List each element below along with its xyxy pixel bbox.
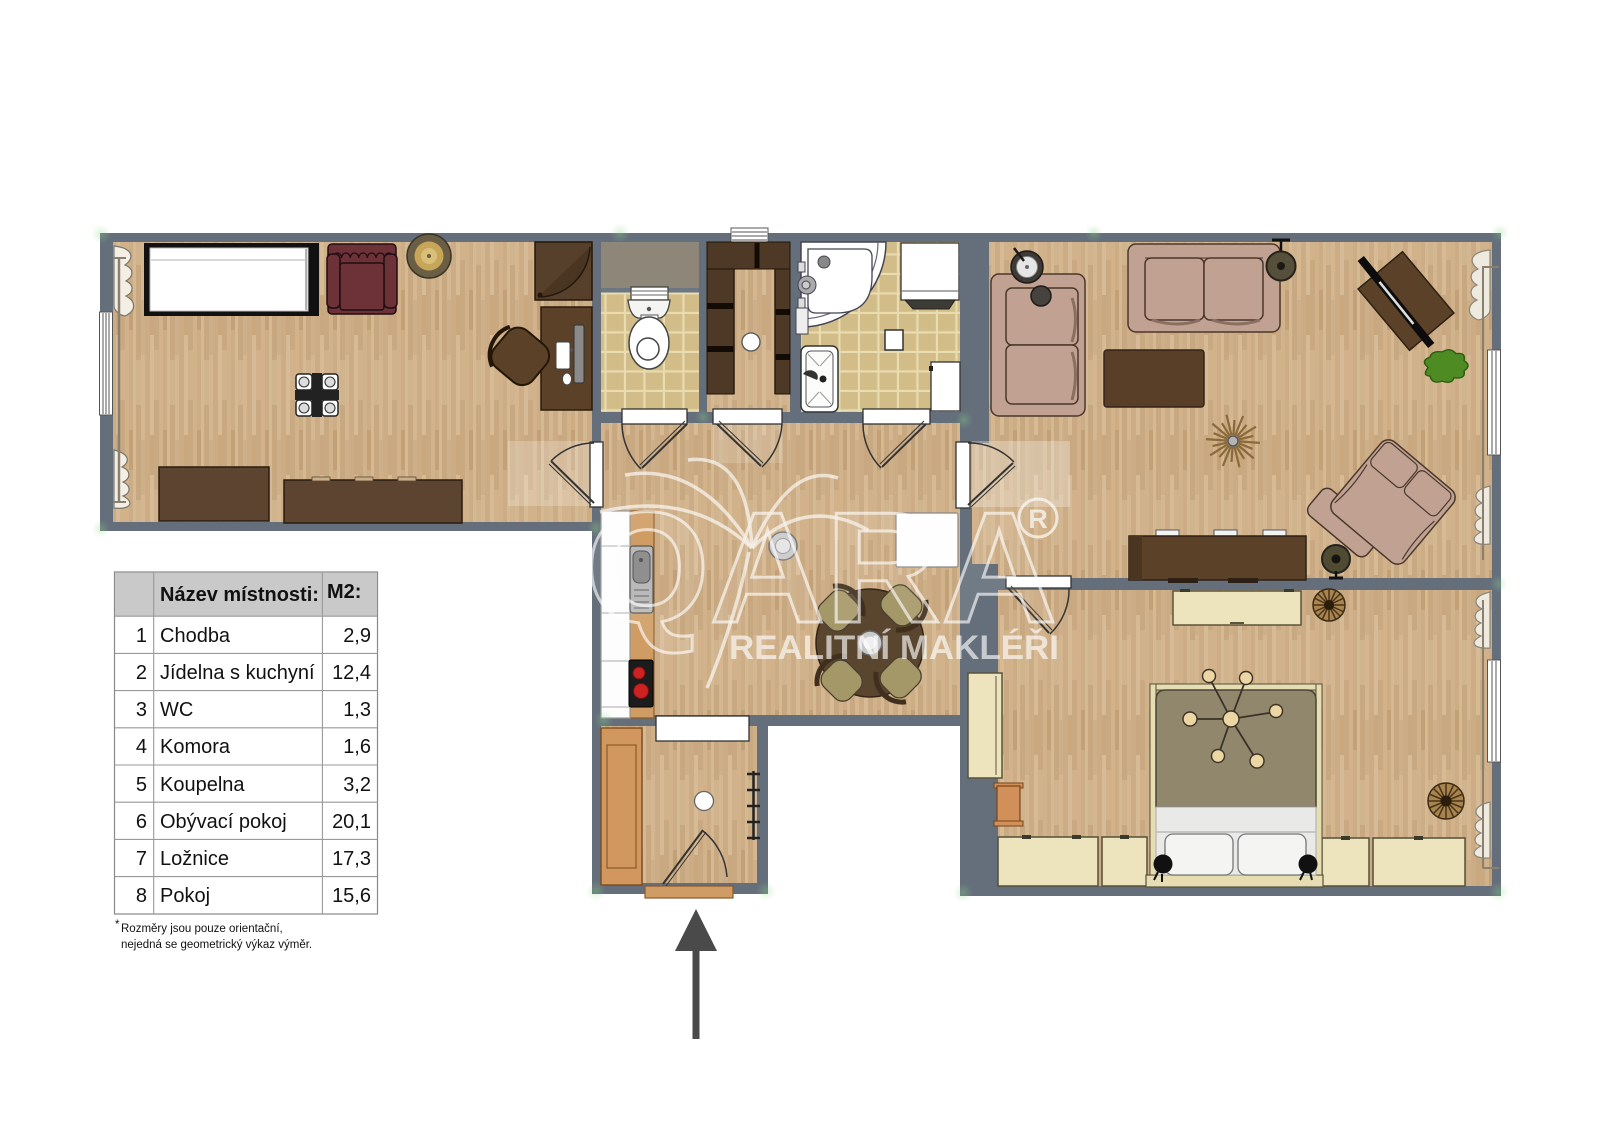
svg-text:R: R — [1028, 504, 1048, 534]
svg-text:4: 4 — [136, 736, 147, 758]
svg-text:WC: WC — [160, 699, 193, 721]
svg-text:6: 6 — [136, 811, 147, 833]
svg-text:Koupelna: Koupelna — [160, 774, 245, 796]
svg-text:M2:: M2: — [327, 581, 361, 603]
svg-text:8: 8 — [136, 885, 147, 907]
svg-text:Název místnosti:: Název místnosti: — [160, 584, 319, 606]
svg-text:Jídelna s kuchyní: Jídelna s kuchyní — [160, 662, 315, 684]
svg-text:12,4: 12,4 — [332, 662, 371, 684]
svg-text:REALITNÍ MAKLÉŘI: REALITNÍ MAKLÉŘI — [729, 629, 1059, 667]
svg-text:1,6: 1,6 — [343, 736, 371, 758]
svg-text:2: 2 — [136, 662, 147, 684]
svg-text:5: 5 — [136, 774, 147, 796]
svg-text:7: 7 — [136, 848, 147, 870]
svg-text:15,6: 15,6 — [332, 885, 371, 907]
svg-text:Rozměry jsou pouze orientační,: Rozměry jsou pouze orientační, — [121, 923, 283, 935]
svg-text:Chodba: Chodba — [160, 625, 231, 647]
svg-text:*: * — [115, 919, 120, 931]
svg-text:3,2: 3,2 — [343, 774, 371, 796]
svg-text:2,9: 2,9 — [343, 625, 371, 647]
svg-text:Komora: Komora — [160, 736, 231, 758]
svg-text:Ložnice: Ložnice — [160, 848, 229, 870]
svg-text:1,3: 1,3 — [343, 699, 371, 721]
svg-text:20,1: 20,1 — [332, 811, 371, 833]
svg-text:nejedná se geometrický výkaz v: nejedná se geometrický výkaz výměr. — [121, 939, 312, 951]
svg-text:3: 3 — [136, 699, 147, 721]
svg-text:Obývací pokoj: Obývací pokoj — [160, 811, 287, 833]
svg-text:1: 1 — [136, 625, 147, 647]
svg-text:Pokoj: Pokoj — [160, 885, 210, 907]
svg-text:17,3: 17,3 — [332, 848, 371, 870]
